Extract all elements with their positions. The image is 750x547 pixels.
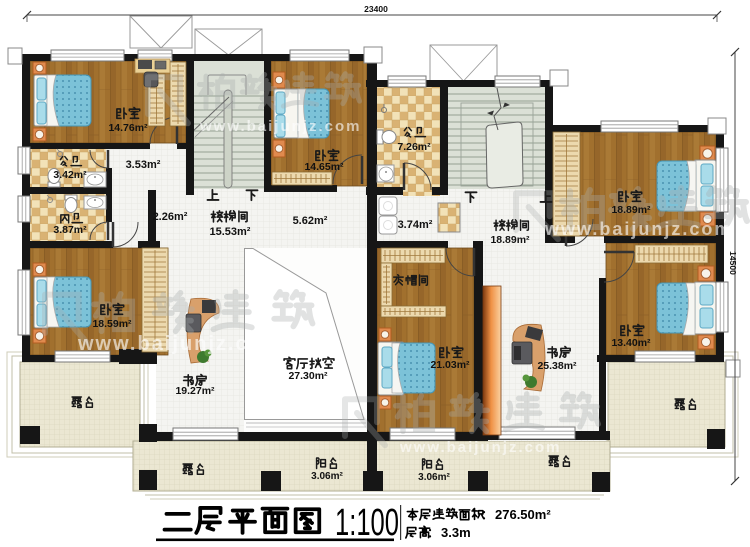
svg-text:14500: 14500 [728,251,738,275]
svg-text:21.03m²: 21.03m² [430,359,470,371]
svg-text:3.87m²: 3.87m² [53,224,87,236]
svg-text:5.62m²: 5.62m² [293,215,328,227]
svg-text:15.53m²: 15.53m² [210,226,251,238]
svg-text:3.06m²: 3.06m² [418,472,450,483]
svg-text:13.40m²: 13.40m² [611,337,651,349]
svg-text:7.26m²: 7.26m² [397,141,431,153]
svg-text:276.50m²: 276.50m² [495,507,551,522]
svg-text:18.89m²: 18.89m² [490,234,530,246]
svg-text:www.baijunjz.com: www.baijunjz.com [544,219,732,239]
svg-text:：: ： [481,508,493,522]
svg-text:14.76m²: 14.76m² [108,122,148,134]
svg-text:3.06m²: 3.06m² [311,471,343,482]
svg-text:www.baijunjz.com: www.baijunjz.com [399,439,561,456]
svg-text:19.27m²: 19.27m² [175,385,215,397]
svg-text:www.baijunjz.com: www.baijunjz.com [199,118,361,135]
svg-text:18.59m²: 18.59m² [92,318,132,330]
svg-text:3.74m²: 3.74m² [398,219,433,231]
svg-text:3.42m²: 3.42m² [53,169,87,181]
svg-text:：: ： [427,526,439,540]
svg-text:www.baijunjz.com: www.baijunjz.com [77,333,283,355]
svg-text:2.26m²: 2.26m² [153,211,188,223]
svg-text:27.30m²: 27.30m² [288,370,328,382]
svg-text:1:100: 1:100 [335,502,399,544]
svg-text:18.89m²: 18.89m² [611,204,651,216]
svg-text:23400: 23400 [364,4,388,14]
svg-text:25.38m²: 25.38m² [537,360,577,372]
svg-text:3.53m²: 3.53m² [126,159,161,171]
svg-text:3.3m: 3.3m [441,525,471,540]
svg-text:14.65m²: 14.65m² [304,161,344,173]
